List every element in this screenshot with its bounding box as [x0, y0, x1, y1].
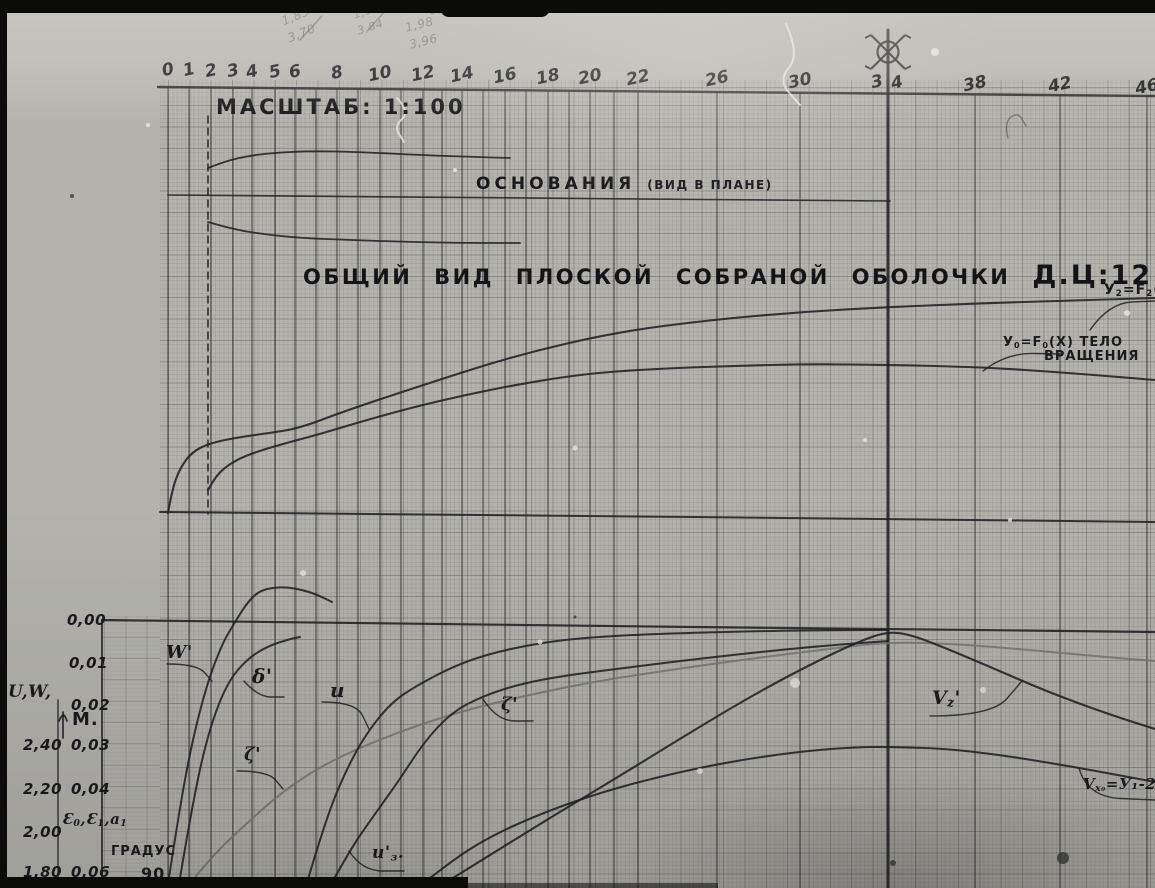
uw-scale-0-02: 0,02: [71, 698, 110, 714]
plan-view-label-text: ОСНОВАНИЯ: [476, 174, 635, 194]
plan-view-label-paren: (ВИД В ПЛАНЕ): [647, 178, 772, 192]
axis-tick-337: 8: [329, 62, 345, 84]
uw-scale-0-01: 0,01: [69, 656, 108, 672]
axis-tick-168: 0: [160, 59, 176, 81]
axis-tick-1060: 42: [1046, 73, 1073, 97]
m-scale-2-40: 2,40: [23, 738, 62, 754]
uw-scale-0-04: 0,04: [71, 782, 110, 798]
gradus-label: ГРАДУС: [111, 845, 176, 859]
m-scale-2-20: 2,20: [23, 782, 62, 798]
axis-tick-189: 1: [181, 59, 197, 81]
axis-tick-800: 30: [786, 69, 813, 93]
photo-edge-bottom-right: [468, 883, 718, 888]
zeta-prime-label-2: ζ': [501, 696, 518, 715]
axis-tick-877: 3: [869, 71, 885, 93]
axis-tick-380: 10: [366, 61, 393, 85]
pencil-note-2b: 3,84: [356, 18, 385, 37]
drawing-title-text: ОБЩИЙ ВИД ПЛОСКОЙ СОБРАНОЙ ОБОЛОЧКИ: [303, 265, 1010, 289]
zeta-prime-label-1: ζ': [244, 746, 261, 765]
axis-tick-897: 4: [889, 72, 905, 94]
uw-scale-0-00: 0,00: [67, 613, 106, 629]
uz-prime-label: u'з.: [372, 845, 404, 863]
vz-prime-label: Vz': [932, 689, 961, 709]
photo-edge-top: [0, 0, 1155, 13]
axis-tick-975: 38: [961, 72, 988, 96]
axis-tick-548: 18: [534, 64, 561, 88]
pencil-note-3b: 3,96: [408, 32, 439, 51]
axis-tick-590: 20: [576, 65, 603, 89]
u-label: u: [330, 680, 345, 701]
uw-axis-label: U,W,: [8, 684, 52, 702]
axis-tick-233: 3: [225, 60, 241, 82]
epsilon-scale-label: Ɛ0,Ɛ1,a1: [62, 812, 127, 829]
blueprint-photo: МАСШТАБ: 1:100 ОСНОВАНИЯ (ВИД В ПЛАНЕ) О…: [0, 0, 1155, 888]
axis-tick-423: 12: [409, 62, 436, 86]
photo-edge-left: [0, 0, 7, 888]
axis-tick-638: 22: [624, 66, 651, 90]
delta-prime-label: δ': [252, 666, 272, 687]
vx0-equation-label: Vx₀=У₁-2,: [1083, 777, 1155, 794]
axis-tick-1147: 46: [1133, 75, 1155, 99]
w-prime-label: W': [166, 644, 193, 663]
y2-function-label: У2=F2(X): [1104, 283, 1155, 299]
axis-tick-275: 5: [267, 61, 283, 83]
photo-edge-top-notch: [440, 0, 550, 17]
m-scale-2-00: 2,00: [23, 825, 62, 841]
axis-tick-295: 6: [287, 61, 303, 83]
axis-tick-462: 14: [448, 63, 475, 87]
drawing-title: ОБЩИЙ ВИД ПЛОСКОЙ СОБРАНОЙ ОБОЛОЧКИ Д.Ц:…: [303, 260, 1152, 291]
plan-view-label: ОСНОВАНИЯ (ВИД В ПЛАНЕ): [476, 174, 773, 194]
annotations: МАСШТАБ: 1:100 ОСНОВАНИЯ (ВИД В ПЛАНЕ) О…: [0, 0, 1155, 888]
axis-tick-505: 16: [491, 64, 518, 88]
y0-function-label-2: ВРАЩЕНИЯ: [1044, 350, 1139, 364]
axis-tick-717: 26: [703, 67, 730, 91]
uw-scale-0-03: 0,03: [71, 738, 110, 754]
photo-edge-bottom: [0, 877, 468, 888]
axis-tick-252: 4: [244, 61, 260, 83]
axis-tick-211: 2: [203, 60, 219, 82]
scale-note: МАСШТАБ: 1:100: [216, 95, 466, 119]
